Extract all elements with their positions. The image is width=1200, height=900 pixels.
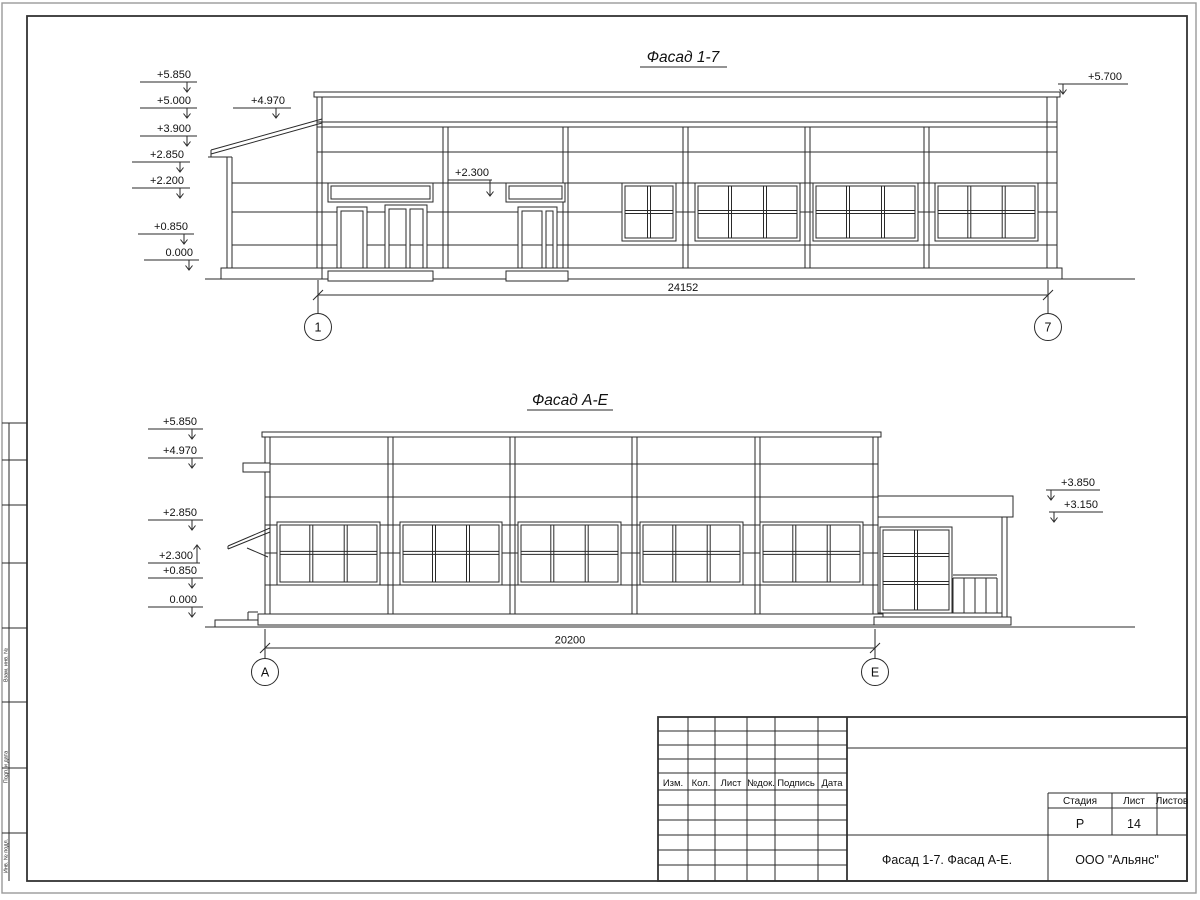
elevation-mark-label: +2.300 xyxy=(455,167,489,179)
door xyxy=(337,207,367,268)
elevation-mark-leader xyxy=(1058,84,1128,94)
elevation-mark-leader xyxy=(140,108,197,118)
elevation-mark-label: +4.970 xyxy=(163,445,197,457)
elevation-mark: +3.850 xyxy=(1046,477,1100,500)
window xyxy=(813,183,918,241)
facade-1-7-title: Фасад 1-7 xyxy=(647,49,721,66)
axis-label: А xyxy=(261,666,270,680)
signboard xyxy=(328,183,433,202)
stage-value: Р xyxy=(1076,817,1084,831)
wall-bracket xyxy=(243,463,270,472)
elevation-mark: +4.970 xyxy=(148,445,203,468)
company-name: ООО "Альянс" xyxy=(1075,853,1159,867)
column-header: Изм. xyxy=(663,778,683,789)
elevation-mark: +2.850 xyxy=(148,507,203,530)
column-header: Лист xyxy=(721,778,742,789)
elevation-mark: +2.200 xyxy=(132,175,190,198)
window xyxy=(277,522,380,585)
annex-roof-band xyxy=(878,496,1013,517)
facade-a-e: Фасад А-Е 20200 А Е xyxy=(148,392,1135,686)
side-stamp: Взам. инв. № Подп. и дата Инв. № подл. xyxy=(2,423,27,881)
window-frame xyxy=(880,527,952,613)
elevation-mark: +3.900 xyxy=(140,123,197,146)
elevation-mark-label: +4.970 xyxy=(251,95,285,107)
window-frame xyxy=(277,522,380,585)
window-frame xyxy=(622,183,676,241)
window-frame xyxy=(935,183,1038,241)
elevation-mark-leader xyxy=(148,458,203,468)
axis-label: 7 xyxy=(1045,321,1052,335)
elevation-mark-label: 0.000 xyxy=(169,594,197,606)
elevation-mark: +2.300 xyxy=(148,545,201,563)
window-frame xyxy=(760,522,863,585)
parapet-cap xyxy=(262,432,881,437)
annex-plinth xyxy=(874,617,1011,625)
elevation-mark-label: +0.850 xyxy=(154,221,188,233)
window xyxy=(518,522,621,585)
elevation-mark-label: +5.850 xyxy=(157,69,191,81)
side-stamp-label: Подп. и дата xyxy=(4,750,10,783)
dimension-value: 20200 xyxy=(555,635,586,647)
column-header: Дата xyxy=(821,778,843,789)
elevation-mark-leader xyxy=(132,162,190,172)
elevation-mark: +0.850 xyxy=(148,565,203,588)
side-stamp-label: Инв. № подл. xyxy=(4,838,10,873)
dimension-line: 24152 xyxy=(313,280,1053,314)
window xyxy=(760,522,863,585)
title-block: Изм. Кол. Лист №док. Подпись Дата Стадия… xyxy=(658,717,1188,881)
elevation-mark: +2.300 xyxy=(448,167,492,180)
elevation-mark: +0.850 xyxy=(138,221,194,244)
window xyxy=(622,183,676,241)
side-stamp-label: Взам. инв. № xyxy=(4,648,10,682)
axis-label: Е xyxy=(871,666,879,680)
porch xyxy=(208,119,322,268)
elevation-mark-leader xyxy=(148,520,203,530)
elevation-mark: +5.000 xyxy=(140,95,197,118)
window xyxy=(695,183,800,241)
elevation-mark: +3.150 xyxy=(1049,499,1103,522)
window-frame xyxy=(813,183,918,241)
drawing-canvas: Взам. инв. № Подп. и дата Инв. № подл. Ф… xyxy=(0,0,1200,900)
window xyxy=(640,522,743,585)
revision-table-columns xyxy=(688,717,818,881)
document-title: Фасад 1-7. Фасад А-Е. xyxy=(882,853,1012,867)
elevation-mark-label: +5.850 xyxy=(163,416,197,428)
entrance-canopy xyxy=(228,528,270,557)
elevation-mark-leader xyxy=(140,136,197,146)
stage-header: Стадия xyxy=(1063,796,1097,807)
elevation-mark-label: +2.200 xyxy=(150,175,184,187)
sheet-header: Лист xyxy=(1123,796,1145,807)
column-header: №док. xyxy=(747,778,775,789)
door-stoop xyxy=(506,271,568,281)
elevation-mark-leader xyxy=(148,607,203,617)
axis-label: 1 xyxy=(315,321,322,335)
column-header: Подпись xyxy=(777,778,815,789)
elevation-mark-label: +0.850 xyxy=(163,565,197,577)
elevation-mark-label: +2.850 xyxy=(150,149,184,161)
door-stoop xyxy=(328,271,433,281)
window-frame xyxy=(400,522,502,585)
column-header: Кол. xyxy=(692,778,711,789)
door xyxy=(518,207,557,268)
railing xyxy=(953,575,997,613)
steps xyxy=(215,612,258,627)
elevation-mark-label: +2.300 xyxy=(159,550,193,562)
window xyxy=(400,522,502,585)
elevation-mark-label: +5.700 xyxy=(1088,71,1122,83)
elevation-mark: 0.000 xyxy=(144,247,199,270)
sheet-number: 14 xyxy=(1127,817,1141,831)
window xyxy=(935,183,1038,241)
elevation-mark-label: +3.150 xyxy=(1064,499,1098,511)
facade-a-e-title: Фасад А-Е xyxy=(532,392,609,409)
door xyxy=(385,205,427,268)
sheets-header: Листов xyxy=(1156,796,1189,807)
elevation-mark: 0.000 xyxy=(148,594,203,617)
facade-1-7: Фасад 1-7 xyxy=(132,49,1135,341)
parapet-cap xyxy=(314,92,1060,97)
axis-bubble: 1 xyxy=(305,314,332,341)
elevation-mark-leader xyxy=(1049,512,1103,522)
elevation-mark-label: +3.850 xyxy=(1061,477,1095,489)
elevation-mark-leader xyxy=(144,260,199,270)
elevation-mark: +2.850 xyxy=(132,149,190,172)
elevation-mark-leader xyxy=(132,188,190,198)
door-frame xyxy=(518,207,557,268)
elevation-mark: +5.700 xyxy=(1058,71,1128,94)
elevation-mark-label: +2.850 xyxy=(163,507,197,519)
window-frame xyxy=(695,183,800,241)
axis-bubble: А xyxy=(252,659,279,686)
elevation-mark: +5.850 xyxy=(140,69,197,92)
dimension-line: 20200 xyxy=(260,629,880,659)
plinth xyxy=(258,614,883,625)
drawing-sheet: Взам. инв. № Подп. и дата Инв. № подл. Ф… xyxy=(0,0,1200,900)
elevation-mark-label: +5.000 xyxy=(157,95,191,107)
elevation-mark: +4.970 xyxy=(233,95,291,118)
elevation-mark-leader xyxy=(140,82,197,92)
window-frame xyxy=(518,522,621,585)
elevation-mark-leader xyxy=(148,429,203,439)
elevation-mark: +5.850 xyxy=(148,416,203,439)
elevation-mark-leader xyxy=(138,234,194,244)
elevation-mark-leader xyxy=(148,578,203,588)
window-frame xyxy=(640,522,743,585)
elevation-mark-label: 0.000 xyxy=(165,247,193,259)
revision-table-rows xyxy=(658,731,847,865)
dimension-value: 24152 xyxy=(668,282,699,294)
axis-bubble: 7 xyxy=(1035,314,1062,341)
signboard xyxy=(506,183,565,202)
elevation-mark-leader xyxy=(233,108,291,118)
elevation-mark-label: +3.900 xyxy=(157,123,191,135)
window xyxy=(880,527,952,613)
axis-bubble: Е xyxy=(862,659,889,686)
porch-plinth xyxy=(221,268,322,279)
